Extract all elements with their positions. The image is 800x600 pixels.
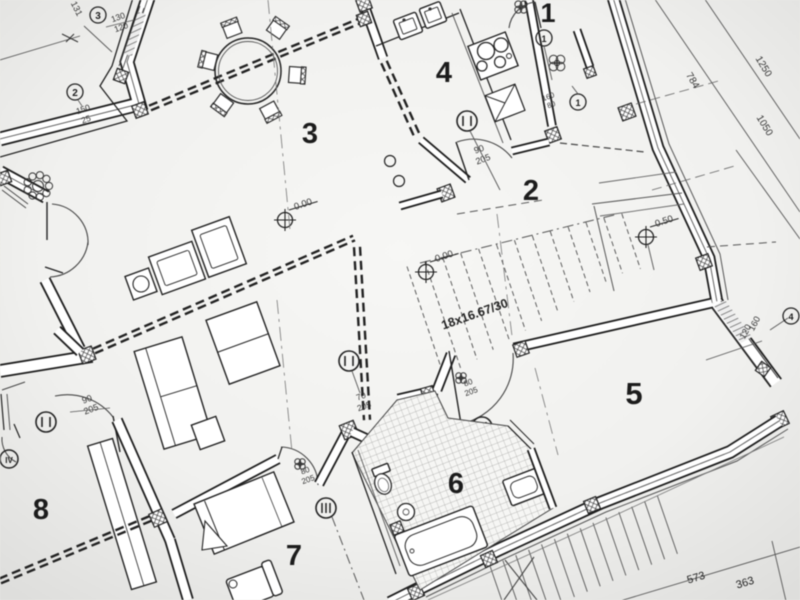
svg-text:8: 8 — [33, 494, 49, 526]
svg-text:2: 2 — [523, 175, 539, 207]
svg-text:IV: IV — [5, 456, 13, 465]
svg-text:4: 4 — [788, 312, 793, 322]
svg-text:2: 2 — [72, 88, 78, 99]
svg-text:1: 1 — [575, 98, 580, 108]
svg-text:3: 3 — [95, 11, 101, 22]
svg-text:4: 4 — [436, 57, 452, 89]
svg-text:6: 6 — [448, 468, 464, 500]
svg-text:3: 3 — [302, 118, 318, 150]
svg-text:5: 5 — [625, 376, 642, 411]
svg-text:7: 7 — [286, 540, 302, 572]
svg-text:1: 1 — [541, 34, 546, 44]
svg-text:1: 1 — [540, 0, 555, 28]
